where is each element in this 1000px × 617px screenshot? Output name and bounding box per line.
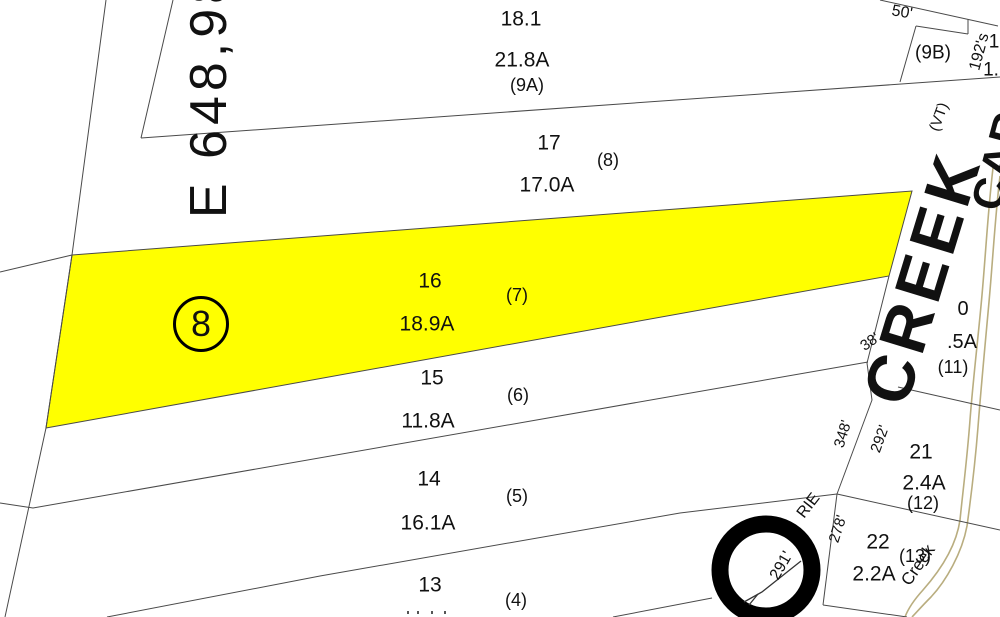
- circled-parcel-8-badge[interactable]: 8: [173, 296, 229, 352]
- clipped-bottom-label-marks: [408, 611, 445, 614]
- creek-line: [905, 168, 1000, 617]
- circled-parcel-8-number: 8: [191, 303, 211, 345]
- large-ring-symbol: [720, 524, 812, 616]
- parcel-map-canvas: 8 18.121.8A(9A)17(8)17.0A16(7)18.9A15(6)…: [0, 0, 1000, 617]
- map-geometry: [0, 0, 1000, 617]
